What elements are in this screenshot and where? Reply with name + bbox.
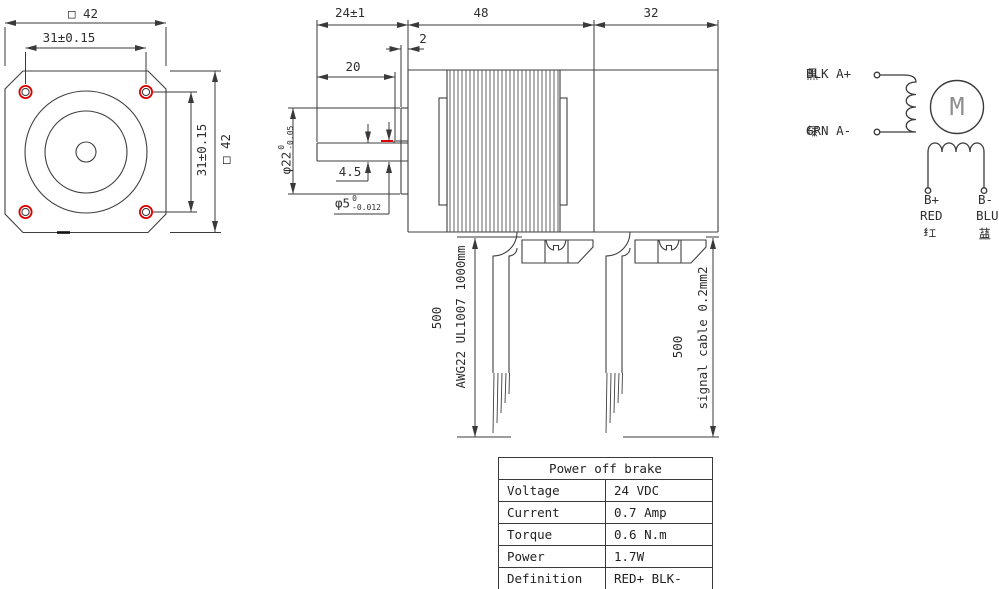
lamination-fins <box>447 70 560 232</box>
gland-screw <box>546 240 566 250</box>
brake-spec-table: Power off brake Voltage 24 VDC Current 0… <box>498 457 713 589</box>
dim-front-height: □ 42 <box>220 134 233 164</box>
front-view <box>5 71 166 233</box>
dim-brake-length: 32 <box>643 7 658 20</box>
motor-symbol-label: M <box>949 92 964 121</box>
table-row: Torque 0.6 N.m <box>499 524 713 546</box>
dim-shaft-diameter: φ50-0.012 <box>335 195 381 213</box>
param-cell: Voltage <box>499 480 606 502</box>
dim-front-width: □ 42 <box>68 8 98 21</box>
table-title: Power off brake <box>499 458 713 480</box>
dim-pilot-depth: 2 <box>419 33 427 46</box>
mount-hole <box>22 88 29 95</box>
terminal-a-minus <box>874 129 880 135</box>
body-circle <box>25 91 147 213</box>
phase-a-plus-label: 黑 BLK A+ <box>806 68 851 81</box>
wire-strands <box>606 373 623 433</box>
dim-front-hole-spacing-h: 31±0.15 <box>43 32 96 45</box>
param-cell: Current <box>499 502 606 524</box>
hanzi-black-icon <box>806 68 819 81</box>
hanzi-red-icon <box>923 227 936 240</box>
dim-shaft-length: 24±1 <box>335 7 365 20</box>
table-row: Voltage 24 VDC <box>499 480 713 502</box>
wiring-diagram <box>874 72 987 193</box>
mount-hole <box>142 88 149 95</box>
hanzi-green-icon <box>806 125 819 138</box>
value-cell: 1.7W <box>606 546 713 568</box>
front-view-dimensions <box>5 23 221 233</box>
phase-a-minus-label: 绿 GRN A- <box>806 125 851 138</box>
terminal-a-plus <box>874 72 880 78</box>
cable-left-spec: AWG22 UL1007 1000mm <box>455 246 468 389</box>
phase-a-coil <box>880 75 916 132</box>
value-cell: 24 VDC <box>606 480 713 502</box>
stator-plate <box>560 98 567 205</box>
dim-front-hole-spacing-v: 31±0.15 <box>196 124 209 177</box>
cable-glands <box>493 232 706 433</box>
table-row: Power 1.7W <box>499 546 713 568</box>
gland-body <box>635 240 706 263</box>
terminal-b-minus-label: B- <box>978 194 993 207</box>
terminal-b-plus-label: B+ <box>924 194 939 207</box>
cable-right-length: 500 <box>672 336 685 359</box>
mount-hole <box>142 208 149 215</box>
dim-flat-height: 4.5 <box>339 166 362 179</box>
hanzi-blue-icon <box>978 227 991 240</box>
table-row: Definition RED+ BLK- <box>499 568 713 589</box>
drawing-canvas: □ 42 31±0.15 31±0.15 □ 42 24±1 2 20 φ220… <box>0 0 999 589</box>
wire-blue-label: BLU <box>976 210 999 223</box>
value-cell: 0.6 N.m <box>606 524 713 546</box>
mount-hole-highlights <box>19 86 152 218</box>
mount-hole <box>22 208 29 215</box>
dim-flat-length: 20 <box>345 61 360 74</box>
wire-strands <box>493 373 510 433</box>
param-cell: Definition <box>499 568 606 589</box>
cable-right-spec: signal cable 0.2mm2 <box>697 267 710 410</box>
phase-b-coil <box>928 143 984 188</box>
table-header-row: Power off brake <box>499 458 713 480</box>
gland-screw <box>659 240 679 250</box>
dim-pilot-diameter: φ220-0.05 <box>278 126 296 175</box>
param-cell: Power <box>499 546 606 568</box>
value-cell: 0.7 Amp <box>606 502 713 524</box>
value-cell: RED+ BLK- <box>606 568 713 589</box>
stator-plate <box>439 98 447 205</box>
dim-body-length: 48 <box>473 7 488 20</box>
shaft-circle <box>76 142 96 162</box>
cable-left-length: 500 <box>431 307 444 330</box>
table-row: Current 0.7 Amp <box>499 502 713 524</box>
param-cell: Torque <box>499 524 606 546</box>
wire-red-label: RED <box>920 210 943 223</box>
gland-body <box>522 240 593 263</box>
pilot-circle <box>45 111 127 193</box>
